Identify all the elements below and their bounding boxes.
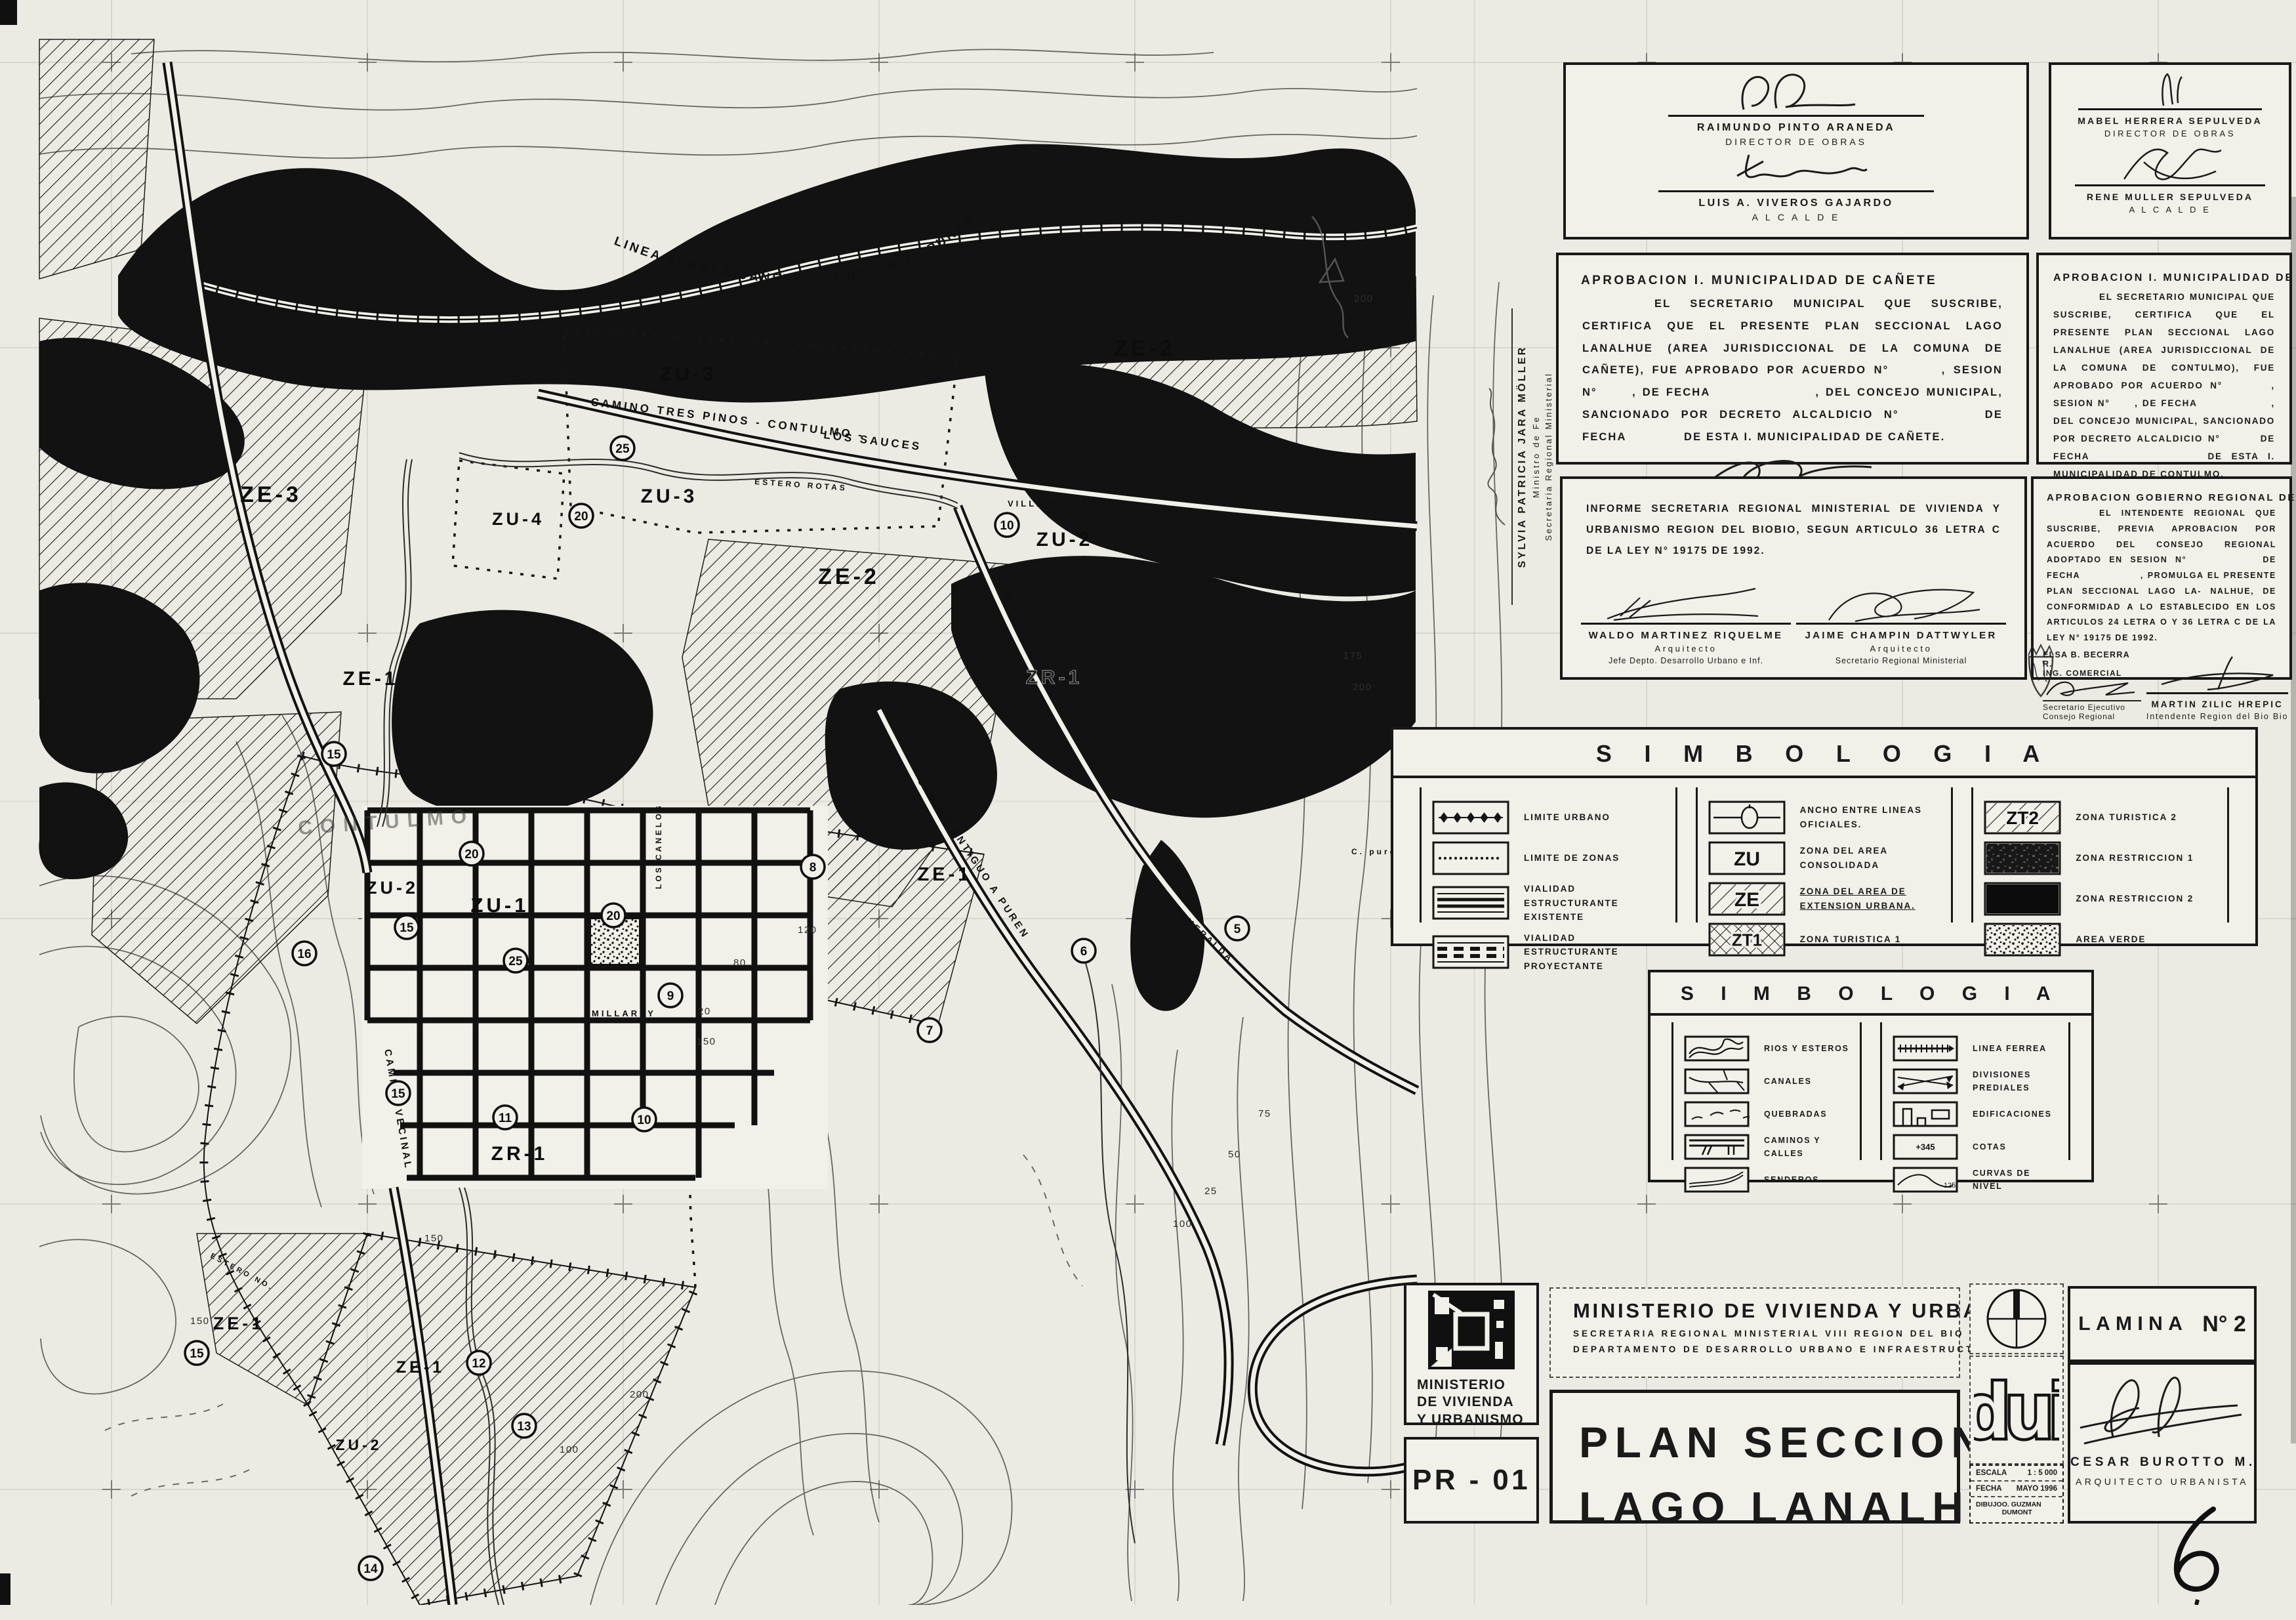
legend-label: VIALIDAD ESTRUCTURANTE PROYECTANTE — [1524, 931, 1665, 974]
side-note-signature — [1480, 384, 1510, 529]
legend-label: ZONA RESTRICCION 2 — [2076, 892, 2194, 906]
zone-label: ZE-3 — [240, 482, 302, 507]
svg-text:25: 25 — [508, 955, 523, 968]
legend-label: SENDEROS — [1764, 1173, 1819, 1186]
seremi-name: JAIME CHAMPIN DATTWYLER — [1796, 630, 2006, 641]
seremi-line: SECRETARIA REGIONAL MINISTERIAL VIII REG… — [1573, 1329, 1959, 1339]
zone-label: ZE-1 — [213, 1314, 265, 1333]
approval-box-canete: APROBACION I. MUNICIPALIDAD DE CAÑETE EL… — [1556, 253, 2029, 465]
legend-row: VIALIDAD ESTRUCTURANTE PROYECTANTE — [1432, 931, 1665, 974]
ministry-name: MINISTERIO DE VIVIENDA Y URBANISMO — [1573, 1299, 1959, 1323]
zone-label: ZE-2 — [1114, 336, 1176, 361]
road-label: LOS CANELOS — [654, 803, 663, 889]
legend-symbol-zt1: ZT1 — [1708, 923, 1786, 957]
svg-text:12: 12 — [472, 1357, 485, 1371]
author-name: CESAR BUROTTO M. — [2070, 1455, 2254, 1470]
signature-box-canete: RAIMUNDO PINTO ARANEDA DIRECTOR DE OBRAS… — [1563, 62, 2029, 239]
escala-value: 1 : 5 000 — [2028, 1469, 2057, 1477]
legend-row: VIALIDAD ESTRUCTURANTE EXISTENTE — [1432, 882, 1665, 924]
numbered-circle-marker: 14 — [359, 1556, 382, 1580]
legend-label: ANCHO ENTRE LINEAS OFICIALES. — [1800, 803, 1941, 831]
contour-elevation-label: 20 — [698, 1006, 711, 1017]
side-note-name: SYLVIA PATRICIA JARA MÖLLER — [1517, 308, 1528, 605]
legend-label: ZONA RESTRICCION 1 — [2076, 851, 2194, 865]
legend-column: ZT2ZONA TURISTICA 2ZONA RESTRICCION 1ZON… — [1971, 787, 2229, 923]
numbered-circle-marker: 5 — [1225, 917, 1249, 940]
intendente-name: MARTIN ZILIC HREPIC — [2146, 699, 2288, 709]
plan-code: PR - 01 — [1412, 1464, 1530, 1497]
gobierno-title: APROBACION GOBIERNO REGIONAL DEL BIOBIO — [2047, 492, 2276, 503]
contour-elevation-label: 150 — [424, 1233, 444, 1244]
svg-text:16: 16 — [297, 947, 311, 961]
zone-label: ZE-1 — [342, 668, 398, 690]
legend-row: LIMITE DE ZONAS — [1432, 841, 1665, 875]
informe-signature-2: JAIME CHAMPIN DATTWYLER Arquitecto Secre… — [1796, 586, 2006, 665]
legend-label: LIMITE DE ZONAS — [1524, 851, 1620, 865]
legend-row: EDIFICACIONES — [1893, 1101, 2058, 1127]
legend-row: LINEA FERREA — [1893, 1035, 2058, 1062]
numbered-circle-marker: 20 — [460, 842, 483, 865]
legend-label: ZONA DEL AREA DE EXTENSION URBANA. — [1800, 884, 1941, 913]
escala-label: ESCALA — [1976, 1469, 2007, 1477]
plan-title-box: PLAN SECCIONAL LAGO LANALHUE — [1549, 1390, 1960, 1524]
dibujo-value: O. GUZMAN DUMONT — [2002, 1501, 2057, 1516]
svg-text:20: 20 — [464, 848, 478, 862]
contour-elevation-label: 200 — [1353, 682, 1372, 693]
intendente-signature-block: MARTIN ZILIC HREPIC Intendente Region de… — [2146, 655, 2288, 721]
handwritten-six-glyph — [2177, 1509, 2217, 1589]
road-label: ESTERO ROTAS — [754, 477, 848, 493]
approval-title: APROBACION I. MUNICIPALIDAD DE CAÑETE — [1581, 274, 2004, 288]
legend-row: ZT1ZONA TURISTICA 1 — [1708, 923, 1941, 957]
signature-jaime — [1816, 586, 1986, 623]
legend-row: ZONA RESTRICCION 2 — [1984, 882, 2217, 916]
svg-text:10: 10 — [637, 1113, 651, 1127]
plan-map: LINEA FERREA CAÑETE - CONTULMO - PUREN — [0, 0, 1555, 1605]
legend-symbol-rios — [1684, 1035, 1750, 1062]
legend-row: ZONA RESTRICCION 1 — [1984, 841, 2217, 875]
legend-symbol-linea-ferrea — [1893, 1035, 1958, 1062]
legend-symbol-limite-urbano — [1432, 800, 1509, 835]
simbologia-title: S I M B O L O G I A — [1393, 730, 2255, 778]
seremi-dept: Secretario Regional Ministerial — [1796, 656, 2006, 665]
contour-elevation-label: 150 — [190, 1316, 210, 1327]
contour-elevation-label: 50 — [1228, 1149, 1241, 1160]
departamento-line: DEPARTAMENTO DE DESARROLLO URBANO E INFR… — [1573, 1344, 1959, 1354]
zone-label: ZU-2 — [335, 1436, 382, 1453]
legend-row: 125CURVAS DE NIVEL — [1893, 1167, 2058, 1193]
legend-symbol-divisiones — [1893, 1068, 1958, 1094]
simbologia-zonas-box: S I M B O L O G I A LIMITE URBANOLIMITE … — [1391, 727, 2258, 946]
numbered-circle-marker: 25 — [611, 436, 634, 460]
numbered-circle-marker: 15 — [322, 742, 346, 766]
svg-text:13: 13 — [517, 1420, 531, 1434]
intendente-role: Intendente Region del Bio Bio — [2146, 712, 2288, 721]
legend-symbol-zu: ZU — [1708, 841, 1786, 875]
fecha-value: MAYO 1996 — [2017, 1485, 2057, 1493]
legend-label: AREA VERDE — [2076, 932, 2146, 947]
legend-row: ANCHO ENTRE LINEAS OFICIALES. — [1708, 800, 1941, 835]
alcalde-role: A L C A L D E — [2051, 205, 2289, 215]
legend-row: DIVISIONES PREDIALES — [1893, 1068, 2058, 1094]
svg-text:15: 15 — [327, 748, 341, 762]
legend-symbol-quebradas — [1684, 1101, 1750, 1127]
alcalde-name: RENE MULLER SEPULVEDA — [2051, 192, 2289, 202]
legend-label: DIVISIONES PREDIALES — [1973, 1068, 2058, 1094]
legend-symbol-curvas: 125 — [1893, 1167, 1958, 1193]
side-note-role1: Ministro de Fe — [1531, 308, 1541, 605]
numbered-circle-marker: 9 — [659, 984, 682, 1007]
consejo-stamp-block: ELSA B. BECERRA R. ING. COMERCIAL Secret… — [2043, 650, 2141, 721]
svg-text:5: 5 — [1234, 923, 1241, 936]
legend-row: AREA VERDE — [1984, 923, 2217, 957]
approval-body: EL SECRETARIO MUNICIPAL QUE SUSCRIBE, CE… — [1582, 293, 2003, 449]
north-compass-icon — [1985, 1287, 2048, 1350]
director-obras-name: RAIMUNDO PINTO ARANEDA — [1566, 122, 2026, 134]
svg-text:+345: +345 — [1916, 1142, 1935, 1152]
contour-elevation-label: 100 — [1173, 1218, 1193, 1230]
author-role: ARQUITECTO URBANISTA — [2070, 1476, 2254, 1487]
arquitecto-dept: Jefe Depto. Desarrollo Urbano e Inf. — [1581, 656, 1791, 665]
contour-elevation-label: 200 — [630, 1389, 649, 1400]
signature-box-contulmo: MABEL HERRERA SEPULVEDA DIRECTOR DE OBRA… — [2049, 62, 2291, 239]
zone-label: ZU-3 — [641, 486, 698, 507]
logo-caption-line1: MINISTERIO — [1417, 1377, 1536, 1394]
zone-label: ZU-2 — [1036, 529, 1094, 550]
legend-symbol-restriccion1 — [1984, 841, 2061, 875]
seremi-role: Arquitecto — [1796, 644, 2006, 654]
legend-label: CAMINOS Y CALLES — [1764, 1134, 1849, 1160]
numbered-circle-marker: 7 — [918, 1018, 941, 1042]
approval-box-contulmo: APROBACION I. MUNICIPALIDAD DE CONTULMO … — [2036, 253, 2292, 465]
plan-title-line1: PLAN SECCIONAL — [1579, 1410, 1957, 1475]
road-label: VILLA RIVAS — [1008, 499, 1088, 509]
informe-body: INFORME SECRETARIA REGIONAL MINISTERIAL … — [1586, 499, 2001, 561]
lamina-number: N° 2 — [2202, 1312, 2246, 1337]
numbered-circle-marker: 6 — [1072, 939, 1096, 963]
simbologia-geografia-box: S I M B O L O G I A RIOS Y ESTEROS CANAL… — [1648, 970, 2094, 1182]
legend-label: VIALIDAD ESTRUCTURANTE EXISTENTE — [1524, 882, 1665, 924]
numbered-circle-marker: 8 — [801, 855, 825, 879]
plan-title-line2: LAGO LANALHUE — [1579, 1475, 1957, 1540]
legend-symbol-senderos — [1684, 1167, 1750, 1193]
legend-symbol-zt2: ZT2 — [1984, 800, 2061, 835]
svg-text:15: 15 — [190, 1347, 204, 1361]
legend-row: CAMINOS Y CALLES — [1684, 1134, 1849, 1160]
zone-label: ZU-3 — [660, 363, 717, 385]
legend-label: LINEA FERREA — [1973, 1042, 2047, 1055]
legend-symbol-limite-zonas — [1432, 841, 1509, 875]
fecha-label: FECHA — [1976, 1485, 2002, 1493]
signature-director-canete — [1717, 69, 1875, 115]
legend-column: LINEA FERREA DIVISIONES PREDIALES EDIFIC… — [1880, 1022, 2070, 1160]
informe-seremi-box: INFORME SECRETARIA REGIONAL MINISTERIAL … — [1560, 476, 2027, 680]
svg-text:7: 7 — [926, 1024, 933, 1038]
dui-logo-box: dui — [1969, 1356, 2064, 1464]
arquitecto-name: WALDO MARTINEZ RIQUELME — [1581, 630, 1791, 641]
ministry-header-box: MINISTERIO DE VIVIENDA Y URBANISMO SECRE… — [1549, 1287, 1960, 1378]
svg-text:ZT2: ZT2 — [2006, 808, 2039, 828]
zone-label: ZE-1 — [918, 864, 972, 885]
signature-waldo — [1601, 586, 1771, 623]
svg-text:15: 15 — [400, 921, 414, 935]
legend-column: ANCHO ENTRE LINEAS OFICIALES.ZUZONA DEL … — [1696, 787, 1954, 923]
legend-symbol-ancho-lineas — [1708, 800, 1786, 835]
legend-label: EDIFICACIONES — [1973, 1108, 2052, 1121]
legend-row: SENDEROS — [1684, 1167, 1849, 1193]
svg-text:ZE: ZE — [1734, 889, 1759, 911]
svg-text:ZT1: ZT1 — [1732, 930, 1762, 949]
zone-label: ZR-1 — [1026, 667, 1083, 688]
director-obras-role: DIRECTOR DE OBRAS — [1566, 136, 2026, 147]
zone-label: ZU-2 — [366, 878, 419, 898]
legend-symbol-canales — [1684, 1068, 1750, 1094]
legend-symbol-ze: ZE — [1708, 882, 1786, 916]
escala-fecha-box: ESCALA 1 : 5 000 FECHA MAYO 1996 DIBUJO … — [1969, 1464, 2064, 1524]
svg-text:15: 15 — [391, 1087, 405, 1101]
numbered-circle-marker: 15 — [386, 1081, 410, 1105]
director-obras-role: DIRECTOR DE OBRAS — [2051, 129, 2289, 138]
legend-symbol-caminos — [1684, 1134, 1750, 1160]
contour-elevation-label: 100 — [560, 1444, 579, 1455]
svg-text:ZU: ZU — [1734, 848, 1760, 870]
plan-code-box: PR - 01 — [1404, 1437, 1539, 1524]
gobierno-body: EL INTENDENTE REGIONAL QUE SUSCRIBE, PRE… — [2047, 506, 2276, 646]
legend-row: QUEBRADAS — [1684, 1101, 1849, 1127]
svg-text:6: 6 — [1080, 945, 1088, 959]
lamina-box: LAMINA N° 2 — [2068, 1286, 2257, 1362]
legend-row: ZT2ZONA TURISTICA 2 — [1984, 800, 2217, 835]
numbered-circle-marker: 20 — [602, 903, 625, 927]
side-note: SYLVIA PATRICIA JARA MÖLLER Ministro de … — [1468, 308, 1547, 617]
legend-label: ZONA TURISTICA 1 — [1800, 932, 1902, 947]
simbologia-title: S I M B O L O G I A — [1650, 972, 2091, 1016]
svg-text:20: 20 — [606, 909, 620, 923]
svg-text:20: 20 — [574, 510, 588, 524]
legend-row: ZUZONA DEL AREA CONSOLIDADA — [1708, 841, 1941, 875]
author-box: CESAR BUROTTO M. ARQUITECTO URBANISTA — [2068, 1362, 2257, 1524]
north-compass-box — [1969, 1283, 2064, 1354]
legend-label: QUEBRADAS — [1764, 1108, 1827, 1121]
svg-text:125: 125 — [1944, 1182, 1956, 1190]
zone-label: ZR-1 — [491, 1143, 548, 1165]
stamp-line1: Secretario Ejecutivo — [2043, 700, 2141, 712]
legend-symbol-vialidad-existente — [1432, 886, 1509, 920]
legend-row: CANALES — [1684, 1068, 1849, 1094]
town-grid — [362, 806, 828, 1189]
contour-elevation-label: 150 — [697, 1036, 716, 1047]
zone-label: ZE-1 — [396, 1358, 445, 1377]
contour-elevation-label: 120 — [798, 924, 817, 936]
legend-column: LIMITE URBANOLIMITE DE ZONAS VIALIDAD ES… — [1420, 787, 1677, 923]
alcalde-role: A L C A L D E — [1566, 212, 2026, 222]
svg-text:9: 9 — [667, 989, 674, 1003]
legend-label: CURVAS DE NIVEL — [1973, 1167, 2058, 1193]
scanned-plan-sheet: { "map": { "railway_label": "LINEA FERRE… — [0, 0, 2296, 1605]
numbered-circle-marker: 10 — [632, 1108, 656, 1131]
signature-alcalde-contulmo — [2104, 142, 2236, 184]
legend-label: ZONA TURISTICA 2 — [2076, 810, 2177, 825]
handwritten-page-number: 6 — [2158, 1503, 2244, 1608]
regional-crest-stamp — [2023, 641, 2059, 701]
legend-label: LIMITE URBANO — [1524, 810, 1610, 825]
signature-author — [2074, 1371, 2251, 1450]
informe-signature-1: WALDO MARTINEZ RIQUELME Arquitecto Jefe … — [1581, 586, 1791, 665]
dui-logo: dui — [1974, 1364, 2059, 1456]
legend-row: ZEZONA DEL AREA DE EXTENSION URBANA. — [1708, 882, 1941, 916]
legend-row: LIMITE URBANO — [1432, 800, 1665, 835]
alcalde-name: LUIS A. VIVEROS GAJARDO — [1566, 197, 2026, 209]
signature-intendente — [2155, 655, 2280, 692]
stamp-line2: Consejo Regional — [2043, 712, 2141, 721]
side-note-role2: Secretaria Regional Ministerial — [1544, 308, 1553, 605]
director-obras-name: MABEL HERRERA SEPULVEDA — [2051, 115, 2289, 126]
legend-column: RIOS Y ESTEROS CANALESQUEBRADAS CAMINOS … — [1671, 1022, 1862, 1160]
minvu-logo — [1428, 1291, 1515, 1369]
legend-row: RIOS Y ESTEROS — [1684, 1035, 1849, 1062]
approval-body: EL SECRETARIO MUNICIPAL QUE SUSCRIBE, CE… — [2053, 288, 2275, 483]
zone-label: ZU-1 — [471, 894, 529, 917]
signature-alcalde-canete — [1717, 150, 1875, 190]
legend-symbol-restriccion2 — [1984, 882, 2061, 916]
contour-elevation-label: 75 — [1258, 1108, 1271, 1119]
numbered-circle-marker: 15 — [185, 1341, 209, 1365]
legend-symbol-edificaciones — [1893, 1101, 1958, 1127]
logo-caption-line3: Y URBANISMO — [1417, 1411, 1536, 1428]
logo-caption-line2: DE VIVIENDA — [1417, 1394, 1536, 1411]
contour-elevation-label: 200 — [1354, 293, 1374, 304]
legend-label: ZONA DEL AREA CONSOLIDADA — [1800, 844, 1941, 872]
approval-title: APROBACION I. MUNICIPALIDAD DE CONTULMO — [2053, 272, 2275, 284]
numbered-circle-marker: 12 — [467, 1351, 491, 1375]
road-label: LOS SAUCES — [823, 428, 923, 453]
road-label: MILLARAY — [592, 1008, 656, 1018]
zone-label: ZU-4 — [492, 509, 544, 529]
contour-elevation-label: 175 — [1343, 650, 1363, 661]
legend-symbol-area-verde — [1984, 923, 2061, 957]
legend-symbol-vialidad-proyectada — [1432, 935, 1509, 969]
svg-text:25: 25 — [615, 442, 630, 456]
legend-label: RIOS Y ESTEROS — [1764, 1042, 1849, 1055]
numbered-circle-marker: 13 — [512, 1414, 536, 1438]
numbered-circle-marker: 16 — [293, 942, 316, 965]
minvu-logo-box: MINISTERIO DE VIVIENDA Y URBANISMO — [1404, 1283, 1539, 1425]
dibujo-label: DIBUJO — [1976, 1501, 2002, 1516]
numbered-circle-marker: 15 — [395, 915, 419, 939]
legend-row: +345COTAS — [1893, 1134, 2058, 1160]
svg-text:10: 10 — [1000, 519, 1014, 533]
lamina-label: LAMINA — [2078, 1313, 2188, 1335]
legend-label: COTAS — [1973, 1140, 2007, 1153]
zone-label: ZE-2 — [818, 564, 880, 589]
arquitecto-role: Arquitecto — [1581, 644, 1791, 654]
gobierno-regional-box: APROBACION GOBIERNO REGIONAL DEL BIOBIO … — [2031, 476, 2292, 680]
dui-logo-text: dui — [1974, 1368, 2059, 1455]
svg-text:11: 11 — [499, 1111, 512, 1125]
legend-label: CANALES — [1764, 1075, 1812, 1088]
signature-director-contulmo — [2118, 70, 2223, 108]
handwritten-tick — [2196, 1600, 2198, 1605]
legend-symbol-cotas: +345 — [1893, 1134, 1958, 1160]
svg-text:14: 14 — [363, 1562, 378, 1576]
contour-elevation-label: 25 — [1204, 1186, 1218, 1197]
numbered-circle-marker: 25 — [504, 949, 527, 972]
numbered-circle-marker: 20 — [569, 504, 593, 528]
numbered-circle-marker: 10 — [995, 513, 1019, 537]
svg-text:8: 8 — [810, 861, 817, 875]
numbered-circle-marker: 11 — [493, 1106, 517, 1129]
contour-elevation-label: 80 — [733, 957, 747, 968]
